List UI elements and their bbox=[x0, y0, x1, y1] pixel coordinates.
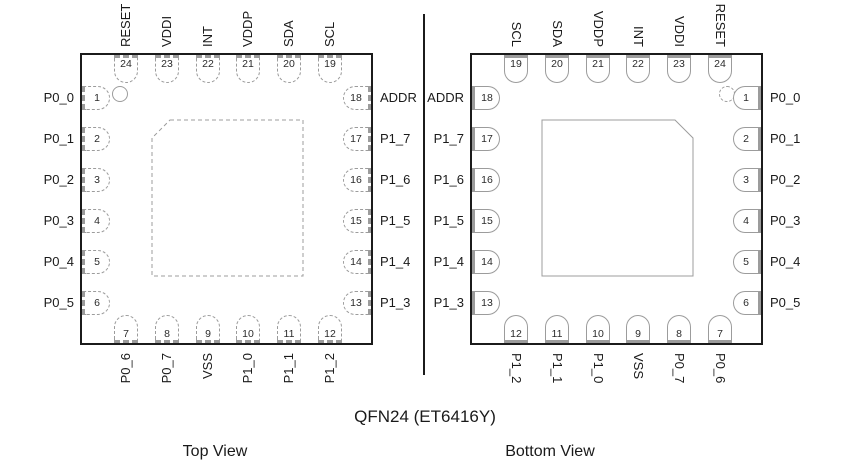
pin-pad: 5 bbox=[82, 250, 110, 274]
pin-label: P1_3 bbox=[434, 296, 464, 310]
pin-pad: 18 bbox=[472, 86, 500, 110]
pin-number: 7 bbox=[717, 329, 723, 339]
pin-pad: 4 bbox=[82, 209, 110, 233]
pin-label: P0_2 bbox=[770, 173, 800, 187]
pin-pad: 7 bbox=[708, 315, 732, 343]
pin-number: 4 bbox=[743, 216, 749, 226]
pin-pad: 16 bbox=[472, 168, 500, 192]
pin-label: P0_5 bbox=[770, 296, 800, 310]
pin-number: 16 bbox=[481, 175, 493, 185]
pin-pad: 19 bbox=[318, 55, 342, 83]
pin-pad: 6 bbox=[82, 291, 110, 315]
pin-label: P0_3 bbox=[770, 214, 800, 228]
pin-label: P0_6 bbox=[713, 353, 727, 383]
pin-number: 17 bbox=[350, 134, 362, 144]
pin-label: RESET bbox=[713, 4, 727, 47]
pin-pad: 23 bbox=[667, 55, 691, 83]
pin-number: 15 bbox=[350, 216, 362, 226]
pin-number: 9 bbox=[635, 329, 641, 339]
pin-pad: 1 bbox=[733, 86, 761, 110]
pin-number: 9 bbox=[205, 329, 211, 339]
pin-number: 13 bbox=[350, 298, 362, 308]
pin-number: 3 bbox=[743, 175, 749, 185]
pin-pad: 5 bbox=[733, 250, 761, 274]
pin-label: P1_7 bbox=[434, 132, 464, 146]
pin-number: 3 bbox=[94, 175, 100, 185]
pin-label: VSS bbox=[631, 353, 645, 379]
pin-pad: 11 bbox=[277, 315, 301, 343]
pin-label: RESET bbox=[119, 4, 133, 47]
pin-number: 12 bbox=[324, 329, 336, 339]
pin-number: 1 bbox=[94, 93, 100, 103]
pin-pad: 14 bbox=[343, 250, 371, 274]
pin-label: ADDR bbox=[427, 91, 464, 105]
pin-pad: 8 bbox=[155, 315, 179, 343]
pin-pad: 4 bbox=[733, 209, 761, 233]
pin-number: 24 bbox=[714, 59, 726, 69]
pin-label: VDDP bbox=[591, 11, 605, 47]
pin-pad: 9 bbox=[626, 315, 650, 343]
pin-label: INT bbox=[201, 26, 215, 47]
pin-number: 5 bbox=[94, 257, 100, 267]
pin-pad: 22 bbox=[196, 55, 220, 83]
pin-pad: 17 bbox=[472, 127, 500, 151]
pin-label: P0_1 bbox=[44, 132, 74, 146]
pin-number: 20 bbox=[283, 59, 295, 69]
pin-label: P1_7 bbox=[380, 132, 410, 146]
pin-label: P0_7 bbox=[160, 353, 174, 383]
pin-label: VDDI bbox=[672, 16, 686, 47]
pin-pad: 24 bbox=[114, 55, 138, 83]
pin-label: P0_0 bbox=[770, 91, 800, 105]
pin-label: P1_0 bbox=[591, 353, 605, 383]
pin-pad: 19 bbox=[504, 55, 528, 83]
pin-label: P1_2 bbox=[509, 353, 523, 383]
pin-pad: 2 bbox=[82, 127, 110, 151]
pin-label: P0_1 bbox=[770, 132, 800, 146]
pin-number: 8 bbox=[676, 329, 682, 339]
pin-pad: 22 bbox=[626, 55, 650, 83]
pin-pad: 16 bbox=[343, 168, 371, 192]
pin-label: P0_2 bbox=[44, 173, 74, 187]
pin-pad: 8 bbox=[667, 315, 691, 343]
pin-number: 6 bbox=[743, 298, 749, 308]
pin-number: 2 bbox=[94, 134, 100, 144]
caption-bottom-view: Bottom View bbox=[505, 443, 595, 461]
pin-label: VDDP bbox=[241, 11, 255, 47]
pin-number: 23 bbox=[673, 59, 685, 69]
chip-body-bottom-view: 181716151413123456192021222324121110987 bbox=[470, 53, 763, 345]
pin-number: 2 bbox=[743, 134, 749, 144]
pin-number: 18 bbox=[350, 93, 362, 103]
pin-number: 5 bbox=[743, 257, 749, 267]
pin-pad: 24 bbox=[708, 55, 732, 83]
pin1-indicator-icon bbox=[112, 86, 128, 102]
pin-pad: 10 bbox=[586, 315, 610, 343]
pin-number: 23 bbox=[161, 59, 173, 69]
pin-label: P1_2 bbox=[323, 353, 337, 383]
pin-pad: 20 bbox=[277, 55, 301, 83]
pin-number: 20 bbox=[551, 59, 563, 69]
pin-pad: 6 bbox=[733, 291, 761, 315]
pin-label: P1_0 bbox=[241, 353, 255, 383]
pin-pad: 9 bbox=[196, 315, 220, 343]
pin-label: P1_6 bbox=[434, 173, 464, 187]
pin-label: P1_3 bbox=[380, 296, 410, 310]
pin-number: 14 bbox=[481, 257, 493, 267]
pin-label: VDDI bbox=[160, 16, 174, 47]
pin-pad: 3 bbox=[82, 168, 110, 192]
pin-number: 4 bbox=[94, 216, 100, 226]
pin-label: P0_0 bbox=[44, 91, 74, 105]
caption-top-view: Top View bbox=[183, 443, 248, 461]
pin-label: ADDR bbox=[380, 91, 417, 105]
pin-pad: 15 bbox=[472, 209, 500, 233]
pin-label: P1_1 bbox=[550, 353, 564, 383]
pin-pad: 21 bbox=[586, 55, 610, 83]
package-title: QFN24 (ET6416Y) bbox=[354, 407, 496, 427]
pin-label: P1_4 bbox=[434, 255, 464, 269]
pin-label: P0_7 bbox=[672, 353, 686, 383]
pin-number: 10 bbox=[242, 329, 254, 339]
pin-pad: 11 bbox=[545, 315, 569, 343]
pin-number: 18 bbox=[481, 93, 493, 103]
pin-pad: 2 bbox=[733, 127, 761, 151]
pin-number: 12 bbox=[510, 329, 522, 339]
pin-number: 24 bbox=[120, 59, 132, 69]
pin-pad: 13 bbox=[343, 291, 371, 315]
chip-body-top-view: 123456181716151413242322212019789101112 bbox=[80, 53, 373, 345]
pin-number: 15 bbox=[481, 216, 493, 226]
pin-label: P0_3 bbox=[44, 214, 74, 228]
pin-pad: 12 bbox=[504, 315, 528, 343]
pin-pad: 17 bbox=[343, 127, 371, 151]
pin-number: 7 bbox=[123, 329, 129, 339]
pin-pad: 21 bbox=[236, 55, 260, 83]
pin-label: P0_6 bbox=[119, 353, 133, 383]
view-divider-line bbox=[423, 14, 425, 375]
pin-pad: 7 bbox=[114, 315, 138, 343]
pin-number: 22 bbox=[202, 59, 214, 69]
pin-pad: 1 bbox=[82, 86, 110, 110]
pin-pad: 18 bbox=[343, 86, 371, 110]
pin-label: P1_1 bbox=[282, 353, 296, 383]
pin-label: P1_6 bbox=[380, 173, 410, 187]
pin-number: 14 bbox=[350, 257, 362, 267]
pin-number: 21 bbox=[592, 59, 604, 69]
pin-number: 16 bbox=[350, 175, 362, 185]
pin-label: P0_5 bbox=[44, 296, 74, 310]
pin-number: 8 bbox=[164, 329, 170, 339]
pin-label: P1_5 bbox=[434, 214, 464, 228]
pin-number: 6 bbox=[94, 298, 100, 308]
pin-label: SCL bbox=[509, 22, 523, 47]
pin-label: VSS bbox=[201, 353, 215, 379]
pin-label: P1_4 bbox=[380, 255, 410, 269]
pin-pad: 20 bbox=[545, 55, 569, 83]
exposed-die-pad bbox=[472, 55, 761, 343]
pin-label: SDA bbox=[282, 20, 296, 47]
pinout-diagram: 123456181716151413242322212019789101112P… bbox=[0, 0, 845, 467]
pin-number: 22 bbox=[632, 59, 644, 69]
pin-number: 21 bbox=[242, 59, 254, 69]
pin-label: SCL bbox=[323, 22, 337, 47]
pin-number: 19 bbox=[324, 59, 336, 69]
pin-pad: 10 bbox=[236, 315, 260, 343]
pin-pad: 14 bbox=[472, 250, 500, 274]
pin-pad: 3 bbox=[733, 168, 761, 192]
pin-pad: 13 bbox=[472, 291, 500, 315]
pin-number: 1 bbox=[743, 93, 749, 103]
pin-number: 13 bbox=[481, 298, 493, 308]
pin-pad: 23 bbox=[155, 55, 179, 83]
pin-label: INT bbox=[631, 26, 645, 47]
pin-number: 10 bbox=[592, 329, 604, 339]
pin-label: P0_4 bbox=[770, 255, 800, 269]
pin-number: 11 bbox=[284, 329, 295, 339]
pin-label: P0_4 bbox=[44, 255, 74, 269]
pin-number: 19 bbox=[510, 59, 522, 69]
pin-pad: 15 bbox=[343, 209, 371, 233]
pin-label: P1_5 bbox=[380, 214, 410, 228]
pin-pad: 12 bbox=[318, 315, 342, 343]
pin-number: 17 bbox=[481, 134, 493, 144]
pin-label: SDA bbox=[550, 20, 564, 47]
pin-number: 11 bbox=[552, 329, 563, 339]
